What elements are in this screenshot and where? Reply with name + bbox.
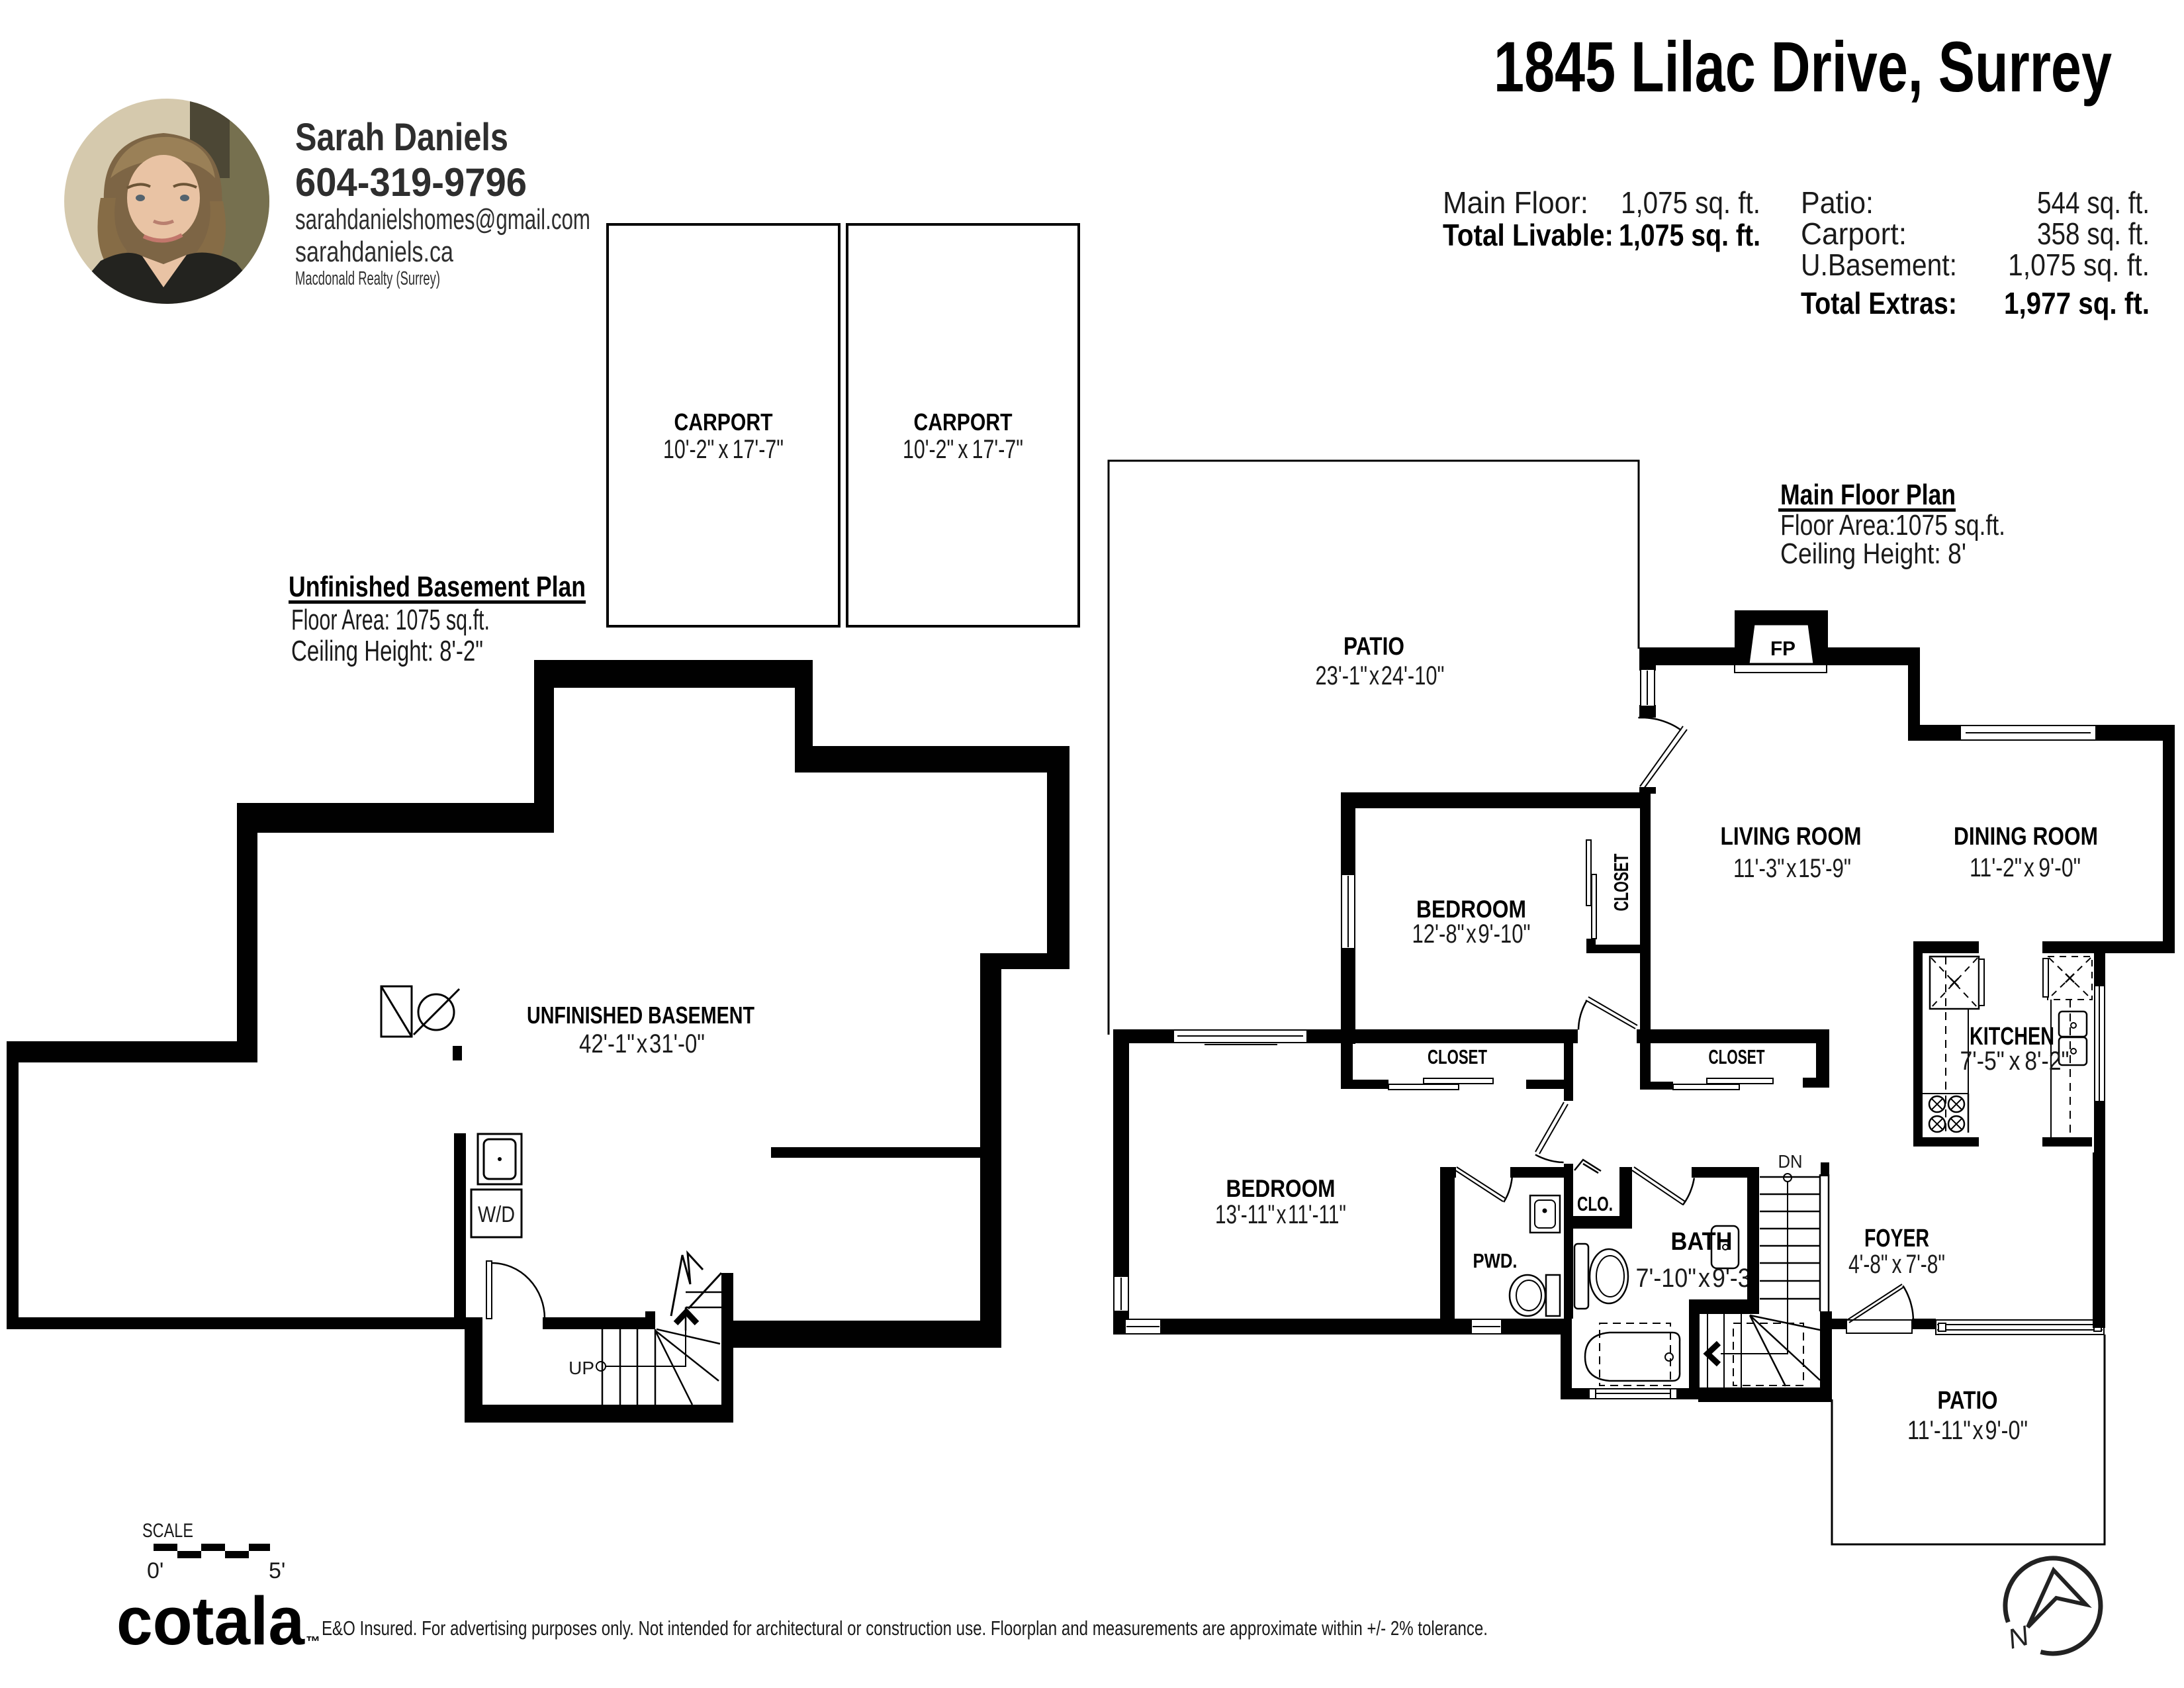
svg-text:0': 0' (147, 1558, 163, 1583)
svg-text:PATIO: PATIO (1938, 1387, 1998, 1415)
svg-text:10'-2" x 17'-7": 10'-2" x 17'-7" (903, 435, 1023, 464)
svg-text:™: ™ (306, 1633, 320, 1650)
svg-text:11'-11" x 9'-0": 11'-11" x 9'-0" (1907, 1416, 2028, 1445)
svg-text:cotala: cotala (116, 1583, 305, 1659)
svg-text:CLOSET: CLOSET (1610, 853, 1633, 911)
svg-text:CLO.: CLO. (1577, 1192, 1613, 1215)
svg-text:4'-8" x 7'-8": 4'-8" x 7'-8" (1848, 1250, 1945, 1279)
svg-text:UNFINISHED BASEMENT: UNFINISHED BASEMENT (527, 1002, 754, 1029)
svg-text:10'-2" x 17'-7": 10'-2" x 17'-7" (663, 435, 784, 464)
svg-text:11'-2" x 9'-0": 11'-2" x 9'-0" (1970, 853, 2081, 882)
svg-text:5': 5' (269, 1558, 285, 1583)
svg-text:DN: DN (1778, 1151, 1803, 1172)
svg-text:LIVING ROOM: LIVING ROOM (1721, 823, 1862, 851)
svg-text:7'-5" x 8'-2": 7'-5" x 8'-2" (1960, 1047, 2070, 1076)
svg-text:CARPORT: CARPORT (914, 408, 1013, 436)
svg-text:BEDROOM: BEDROOM (1226, 1175, 1336, 1202)
svg-text:CLOSET: CLOSET (1428, 1045, 1487, 1068)
svg-text:CARPORT: CARPORT (674, 408, 773, 436)
svg-text:PWD.: PWD. (1473, 1249, 1518, 1272)
svg-text:FP: FP (1770, 637, 1796, 660)
svg-text:7'-10" x 9'-3": 7'-10" x 9'-3" (1636, 1264, 1760, 1293)
svg-text:11'-3" x 15'-9": 11'-3" x 15'-9" (1733, 854, 1851, 883)
svg-text:SCALE: SCALE (142, 1520, 193, 1542)
svg-text:12'-8" x 9'-10": 12'-8" x 9'-10" (1412, 919, 1531, 949)
svg-text:BATH: BATH (1671, 1228, 1733, 1256)
svg-text:PATIO: PATIO (1343, 633, 1404, 661)
svg-text:23'-1" x 24'-10": 23'-1" x 24'-10" (1316, 661, 1445, 690)
svg-text:W/D: W/D (478, 1202, 515, 1227)
svg-text:DINING ROOM: DINING ROOM (1954, 823, 2098, 851)
svg-text:13'-11" x 11'-11": 13'-11" x 11'-11" (1215, 1200, 1346, 1229)
svg-text:CLOSET: CLOSET (1709, 1045, 1765, 1068)
svg-text:UP: UP (569, 1358, 594, 1378)
svg-text:BEDROOM: BEDROOM (1416, 896, 1526, 923)
svg-text:42'-1" x 31'-0": 42'-1" x 31'-0" (579, 1029, 705, 1058)
svg-text:E&O Insured. For advertising p: E&O Insured. For advertising purposes on… (322, 1617, 1488, 1640)
svg-text:FOYER: FOYER (1864, 1225, 1929, 1252)
